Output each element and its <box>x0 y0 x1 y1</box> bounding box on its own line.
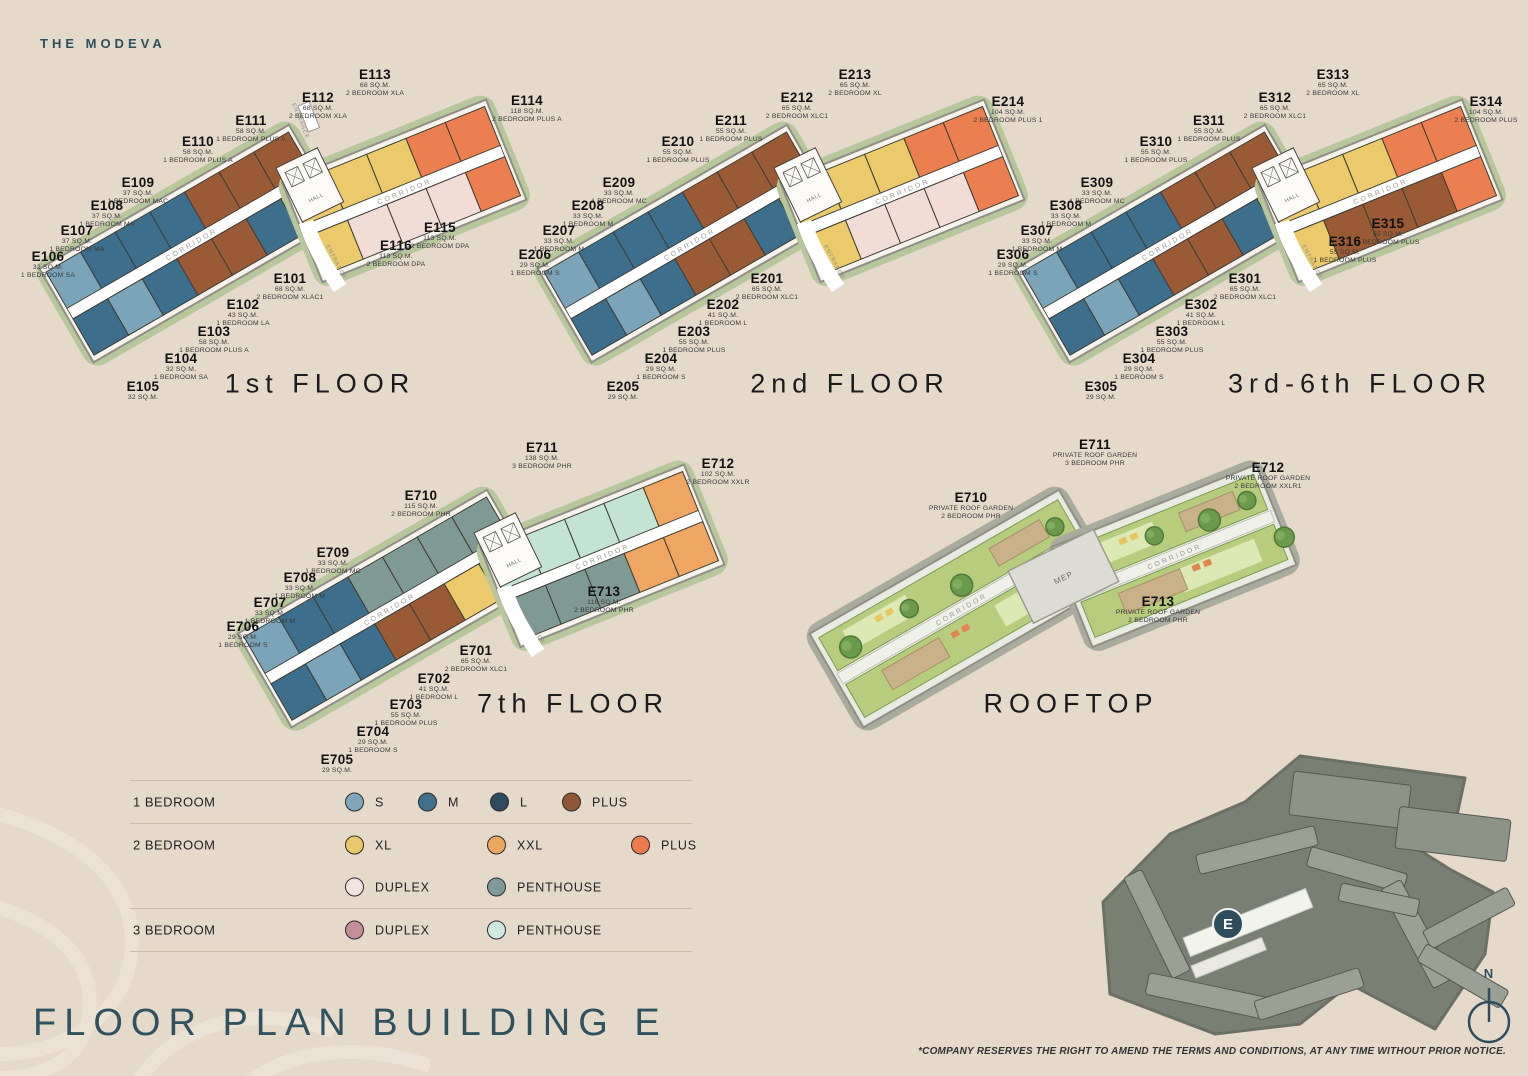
unit-spec: 2 BEDROOM XLA <box>289 113 347 121</box>
unit-label-E713: E713PRIVATE ROOF GARDEN2 BEDROOM PHR <box>1116 594 1200 624</box>
unit-label-E711: E711138 SQ.M.3 BEDROOM PHR <box>512 440 572 470</box>
legend-divider <box>130 951 692 952</box>
unit-spec: 29 SQ.M. <box>607 394 640 402</box>
unit-id: E315 <box>1356 216 1419 231</box>
unit-id: E115 <box>411 220 470 235</box>
legend-color-swatch <box>631 836 650 855</box>
unit-id: E702 <box>410 671 459 686</box>
unit-label-E712: E712102 SQ.M.2 BEDROOM XXLR <box>686 456 749 486</box>
unit-spec: 68 SQ.M. <box>256 286 323 294</box>
unit-id: E710 <box>391 488 451 503</box>
legend-item: PLUS <box>631 836 697 855</box>
unit-id: E116 <box>367 238 426 253</box>
unit-label-E203: E20355 SQ.M.1 BEDROOM PLUS <box>662 324 725 354</box>
unit-spec: 113 SQ.M. <box>367 253 426 261</box>
unit-spec: 2 BEDROOM XLA <box>346 90 404 98</box>
unit-spec: 29 SQ.M. <box>510 262 559 270</box>
unit-label-E713: E713118 SQ.M.2 BEDROOM PHR <box>574 584 634 614</box>
legend-item: L <box>490 793 528 812</box>
unit-id: E112 <box>289 90 347 105</box>
unit-id: E113 <box>346 67 404 82</box>
unit-id: E710 <box>929 490 1013 505</box>
unit-label-E701: E70165 SQ.M.2 BEDROOM XLC1 <box>445 643 507 673</box>
unit-spec: 2 BEDROOM XLC1 <box>1244 113 1306 121</box>
unit-id: E114 <box>492 93 562 108</box>
unit-spec: 37 SQ.M. <box>108 190 168 198</box>
unit-id: E314 <box>1454 94 1517 109</box>
floor-title: 1st FLOOR <box>225 369 416 400</box>
legend-row: 1 BEDROOMSMLPLUS <box>130 780 692 823</box>
unit-spec: 32 SQ.M. <box>127 394 160 402</box>
unit-spec: 1 BEDROOM S <box>348 747 397 755</box>
legend-row: DUPLEXPENTHOUSE <box>130 866 692 908</box>
unit-spec: 55 SQ.M. <box>646 149 709 157</box>
unit-spec: 29 SQ.M. <box>1085 394 1118 402</box>
floor-plan-2nd: CORRIDOR CORRIDOR HALL ENTRANCE 2nd FLOO… <box>528 60 1033 410</box>
unit-label-E212: E21265 SQ.M.2 BEDROOM XLC1 <box>766 90 828 120</box>
unit-spec: 33 SQ.M. <box>591 190 647 198</box>
floor-title: ROOFTOP <box>983 689 1158 720</box>
unit-label-E712: E712PRIVATE ROOF GARDEN2 BEDROOM XXLR1 <box>1226 460 1310 490</box>
unit-spec: 2 BEDROOM XLC1 <box>766 113 828 121</box>
unit-spec: 41 SQ.M. <box>1177 312 1226 320</box>
unit-spec: 115 SQ.M. <box>391 503 451 511</box>
unit-spec: 104 SQ.M. <box>973 109 1042 117</box>
unit-spec: 65 SQ.M. <box>1306 82 1359 90</box>
unit-id: E304 <box>1114 351 1163 366</box>
floor-plan-7th: CORRIDOR CORRIDOR HALL ENTRANCE 7th FLOO… <box>228 425 768 785</box>
unit-spec: 29 SQ.M. <box>636 366 685 374</box>
unit-spec: 2 BEDROOM PHR <box>1116 617 1200 625</box>
unit-spec: 1 BEDROOM M <box>563 221 614 229</box>
unit-id: E704 <box>348 724 397 739</box>
unit-label-E114: E114118 SQ.M.2 BEDROOM PLUS A <box>492 93 562 123</box>
unit-spec: 104 SQ.M. <box>1454 109 1517 117</box>
unit-id: E104 <box>154 351 208 366</box>
unit-spec: 1 BEDROOM M <box>275 593 326 601</box>
unit-id: E713 <box>574 584 634 599</box>
unit-label-E709: E70933 SQ.M.1 BEDROOM MC <box>305 545 361 575</box>
unit-label-E211: E21155 SQ.M.1 BEDROOM PLUS <box>699 113 762 143</box>
legend-item: DUPLEX <box>345 878 430 897</box>
floor-plan-3rd-6th: CORRIDOR CORRIDOR HALL ENTRANCE 3rd-6th … <box>1006 60 1528 410</box>
unit-spec: 55 SQ.M. <box>1124 149 1187 157</box>
unit-spec: 41 SQ.M. <box>699 312 748 320</box>
unit-spec: 29 SQ.M. <box>321 767 354 775</box>
unit-spec: 1 BEDROOM S <box>636 374 685 382</box>
unit-label-E710: E710PRIVATE ROOF GARDEN2 BEDROOM PHR <box>929 490 1013 520</box>
site-map-drawing: E <box>1095 742 1515 1037</box>
unit-spec: 2 BEDROOM DPA <box>367 261 426 269</box>
unit-id: E701 <box>445 643 507 658</box>
floor-title: 2nd FLOOR <box>750 369 950 400</box>
unit-spec: 1 BEDROOM SA <box>154 374 208 382</box>
unit-id: E305 <box>1085 379 1118 394</box>
legend-color-swatch <box>487 878 506 897</box>
unit-label-E302: E30241 SQ.M.1 BEDROOM L <box>1177 297 1226 327</box>
unit-id: E202 <box>699 297 748 312</box>
unit-label-E111: E11158 SQ.M.1 BEDROOM PLUS A <box>216 113 286 143</box>
unit-id: E705 <box>321 752 354 767</box>
unit-id: E303 <box>1140 324 1203 339</box>
unit-spec: 33 SQ.M. <box>1041 213 1092 221</box>
unit-spec: 3 BEDROOM PHR <box>1053 460 1137 468</box>
unit-spec: 65 SQ.M. <box>736 286 798 294</box>
legend-item: PENTHOUSE <box>487 921 602 940</box>
unit-id: E311 <box>1177 113 1240 128</box>
unit-label-E312: E31265 SQ.M.2 BEDROOM XLC1 <box>1244 90 1306 120</box>
unit-label-E305: E30529 SQ.M. <box>1085 379 1118 402</box>
legend-item: M <box>418 793 459 812</box>
floor-plan-1st: CORRIDOR CORRIDOR HALL ENTRANCE ENTRANCE… <box>30 60 535 410</box>
unit-id: E316 <box>1313 234 1376 249</box>
unit-label-E314: E314104 SQ.M.2 BEDROOM PLUS <box>1454 94 1517 124</box>
unit-label-E209: E20933 SQ.M.1 BEDROOM MC <box>591 175 647 205</box>
unit-id: E204 <box>636 351 685 366</box>
unit-spec: 1 BEDROOM M <box>245 618 296 626</box>
unit-spec: 2 BEDROOM PHR <box>929 513 1013 521</box>
unit-spec: 1 BEDROOM PLUS <box>1124 157 1187 165</box>
legend-item-name: DUPLEX <box>375 880 430 894</box>
legend-item: XL <box>345 836 392 855</box>
unit-spec: 2 BEDROOM XXLR1 <box>1226 483 1310 491</box>
unit-spec: 55 SQ.M. <box>1140 339 1203 347</box>
unit-spec: 65 SQ.M. <box>1214 286 1276 294</box>
legend-item: PLUS <box>562 793 628 812</box>
legend-row-label: 1 BEDROOM <box>133 795 216 810</box>
unit-spec: 102 SQ.M. <box>686 471 749 479</box>
building-e-marker-label: E <box>1223 916 1233 933</box>
unit-spec: 1 BEDROOM MAC <box>108 198 168 206</box>
unit-spec: 1 BEDROOM MC <box>305 568 361 576</box>
unit-label-E103: E10358 SQ.M.1 BEDROOM PLUS A <box>179 324 249 354</box>
disclaimer-text: *COMPANY RESERVES THE RIGHT TO AMEND THE… <box>918 1046 1506 1057</box>
unit-spec: 68 SQ.M. <box>289 105 347 113</box>
unit-id: E209 <box>591 175 647 190</box>
unit-spec: 58 SQ.M. <box>163 149 233 157</box>
unit-spec: 55 SQ.M. <box>374 712 437 720</box>
floor-plan-page: THE MODEVA CORRIDOR CORRIDOR HALL ENTRAN… <box>0 0 1528 1076</box>
floor-title: 7th FLOOR <box>477 689 669 720</box>
legend-item-name: XL <box>375 838 392 852</box>
legend-color-swatch <box>418 793 437 812</box>
unit-label-E202: E20241 SQ.M.1 BEDROOM L <box>699 297 748 327</box>
unit-id: E312 <box>1244 90 1306 105</box>
unit-id: E214 <box>973 94 1042 109</box>
unit-id: E109 <box>108 175 168 190</box>
unit-id: E301 <box>1214 271 1276 286</box>
unit-spec: 33 SQ.M. <box>1069 190 1125 198</box>
unit-spec: 37 SQ.M. <box>49 238 104 246</box>
unit-spec: 33 SQ.M. <box>1012 238 1063 246</box>
unit-id: E103 <box>179 324 249 339</box>
unit-label-E205: E20529 SQ.M. <box>607 379 640 402</box>
unit-label-E303: E30355 SQ.M.1 BEDROOM PLUS <box>1140 324 1203 354</box>
unit-spec: 2 BEDROOM XXLR <box>686 479 749 487</box>
legend-item-name: M <box>448 795 459 809</box>
unit-spec: 1 BEDROOM S <box>988 270 1037 278</box>
unit-spec: 2 BEDROOM PHR <box>391 511 451 519</box>
unit-spec: 43 SQ.M. <box>216 312 269 320</box>
unit-id: E713 <box>1116 594 1200 609</box>
unit-id: E101 <box>256 271 323 286</box>
unit-spec: 1 BEDROOM S <box>1114 374 1163 382</box>
unit-spec: 2 BEDROOM PLUS 1 <box>973 117 1042 125</box>
unit-label-E109: E10937 SQ.M.1 BEDROOM MAC <box>108 175 168 205</box>
legend-color-swatch <box>487 836 506 855</box>
unit-id: E313 <box>1306 67 1359 82</box>
unit-spec: 118 SQ.M. <box>492 108 562 116</box>
unit-spec: 32 SQ.M. <box>154 366 208 374</box>
legend-item-name: PENTHOUSE <box>517 880 602 894</box>
unit-spec: PRIVATE ROOF GARDEN <box>1226 475 1310 483</box>
unit-spec: 29 SQ.M. <box>218 634 267 642</box>
unit-spec: 2 BEDROOM PLUS <box>1454 117 1517 125</box>
north-label: N <box>1484 966 1494 981</box>
unit-id: E711 <box>1053 437 1137 452</box>
unit-spec: 1 BEDROOM PLUS <box>646 157 709 165</box>
unit-spec: 2 BEDROOM XL <box>1306 90 1359 98</box>
unit-spec: 1 BEDROOM PLUS <box>699 136 762 144</box>
unit-spec: 118 SQ.M. <box>574 599 634 607</box>
unit-label-E711: E711PRIVATE ROOF GARDEN3 BEDROOM PHR <box>1053 437 1137 467</box>
legend-item-name: PLUS <box>592 795 628 809</box>
legend-item-name: PLUS <box>661 838 697 852</box>
unit-label-E204: E20429 SQ.M.1 BEDROOM S <box>636 351 685 381</box>
unit-spec: 2 BEDROOM PHR <box>574 607 634 615</box>
unit-spec: 29 SQ.M. <box>348 739 397 747</box>
unit-spec: 1 BEDROOM M <box>534 246 585 254</box>
unit-spec: PRIVATE ROOF GARDEN <box>1053 452 1137 460</box>
unit-id: E211 <box>699 113 762 128</box>
unit-label-E309: E30933 SQ.M.1 BEDROOM MC <box>1069 175 1125 205</box>
unit-spec: 32 SQ.M. <box>21 264 75 272</box>
unit-spec: 65 SQ.M. <box>828 82 881 90</box>
unit-type-legend: 1 BEDROOMSMLPLUS2 BEDROOMXLXXLPLUSDUPLEX… <box>130 780 692 952</box>
unit-spec: 33 SQ.M. <box>563 213 614 221</box>
unit-spec: 65 SQ.M. <box>1244 105 1306 113</box>
unit-label-E304: E30429 SQ.M.1 BEDROOM S <box>1114 351 1163 381</box>
legend-item: DUPLEX <box>345 921 430 940</box>
unit-id: E201 <box>736 271 798 286</box>
unit-spec: 58 SQ.M. <box>216 128 286 136</box>
brand-logo: THE MODEVA <box>40 36 166 51</box>
legend-color-swatch <box>345 836 364 855</box>
unit-spec: 138 SQ.M. <box>512 455 572 463</box>
unit-label-E104: E10432 SQ.M.1 BEDROOM SA <box>154 351 208 381</box>
unit-spec: 3 BEDROOM PHR <box>512 463 572 471</box>
legend-item-name: DUPLEX <box>375 923 430 937</box>
unit-spec: 1 BEDROOM MA <box>79 221 134 229</box>
unit-label-E705: E70529 SQ.M. <box>321 752 354 775</box>
unit-spec: 65 SQ.M. <box>445 658 507 666</box>
page-title: FLOOR PLAN BUILDING E <box>33 1002 668 1045</box>
unit-id: E712 <box>686 456 749 471</box>
unit-label-E112: E11268 SQ.M.2 BEDROOM XLA <box>289 90 347 120</box>
unit-id: E105 <box>127 379 160 394</box>
unit-label-E105: E10532 SQ.M. <box>127 379 160 402</box>
unit-spec: 1 BEDROOM M <box>1041 221 1092 229</box>
floor-title: 3rd-6th FLOOR <box>1228 369 1492 400</box>
unit-id: E203 <box>662 324 725 339</box>
unit-id: E205 <box>607 379 640 394</box>
legend-color-swatch <box>562 793 581 812</box>
unit-spec: 1 BEDROOM SA <box>21 272 75 280</box>
unit-spec: 1 BEDROOM MC <box>591 198 647 206</box>
unit-spec: 68 SQ.M. <box>346 82 404 90</box>
unit-id: E703 <box>374 697 437 712</box>
unit-spec: 1 BEDROOM M <box>1012 246 1063 254</box>
legend-item-name: XXL <box>517 838 543 852</box>
unit-spec: 2 BEDROOM PLUS A <box>492 116 562 124</box>
unit-spec: 55 SQ.M. <box>1313 249 1376 257</box>
unit-spec: 33 SQ.M. <box>245 610 296 618</box>
unit-spec: 33 SQ.M. <box>305 560 361 568</box>
legend-color-swatch <box>345 793 364 812</box>
unit-id: E102 <box>216 297 269 312</box>
unit-spec: PRIVATE ROOF GARDEN <box>1116 609 1200 617</box>
legend-row: 3 BEDROOMDUPLEXPENTHOUSE <box>130 908 692 951</box>
legend-row-label: 3 BEDROOM <box>133 923 216 938</box>
unit-id: E709 <box>305 545 361 560</box>
unit-spec: 2 BEDROOM XL <box>828 90 881 98</box>
legend-color-swatch <box>490 793 509 812</box>
unit-spec: 1 BEDROOM PLUS A <box>216 136 286 144</box>
unit-spec: 33 SQ.M. <box>275 585 326 593</box>
unit-spec: 41 SQ.M. <box>410 686 459 694</box>
legend-item: PENTHOUSE <box>487 878 602 897</box>
unit-label-E710: E710115 SQ.M.2 BEDROOM PHR <box>391 488 451 518</box>
unit-id: E213 <box>828 67 881 82</box>
legend-color-swatch <box>487 921 506 940</box>
floor-plan-rooftop: CORRIDOR CORRIDOR MEP ROOFTOPE710PR <box>800 425 1330 755</box>
unit-spec: 1 BEDROOM S <box>218 642 267 650</box>
unit-spec: 65 SQ.M. <box>766 105 828 113</box>
unit-spec: 58 SQ.M. <box>179 339 249 347</box>
legend-item: XXL <box>487 836 543 855</box>
legend-color-swatch <box>345 878 364 897</box>
unit-id: E712 <box>1226 460 1310 475</box>
unit-label-E214: E214104 SQ.M.2 BEDROOM PLUS 1 <box>973 94 1042 124</box>
unit-label-E704: E70429 SQ.M.1 BEDROOM S <box>348 724 397 754</box>
legend-row-label: 2 BEDROOM <box>133 838 216 853</box>
unit-id: E309 <box>1069 175 1125 190</box>
unit-label-E311: E31155 SQ.M.1 BEDROOM PLUS <box>1177 113 1240 143</box>
unit-spec: 55 SQ.M. <box>699 128 762 136</box>
unit-label-E703: E70355 SQ.M.1 BEDROOM PLUS <box>374 697 437 727</box>
legend-item-name: L <box>520 795 528 809</box>
unit-spec: 1 BEDROOM PLUS <box>1177 136 1240 144</box>
legend-row: 2 BEDROOMXLXXLPLUS <box>130 823 692 866</box>
unit-spec: 55 SQ.M. <box>662 339 725 347</box>
unit-spec: 29 SQ.M. <box>988 262 1037 270</box>
unit-label-E113: E11368 SQ.M.2 BEDROOM XLA <box>346 67 404 97</box>
unit-spec: PRIVATE ROOF GARDEN <box>929 505 1013 513</box>
unit-label-E116: E116113 SQ.M.2 BEDROOM DPA <box>367 238 426 268</box>
unit-id: E302 <box>1177 297 1226 312</box>
unit-label-E213: E21365 SQ.M.2 BEDROOM XL <box>828 67 881 97</box>
unit-spec: 37 SQ.M. <box>79 213 134 221</box>
site-map: E <box>1095 742 1515 1042</box>
unit-label-E316: E31655 SQ.M.1 BEDROOM PLUS <box>1313 234 1376 264</box>
unit-label-E102: E10243 SQ.M.1 BEDROOM LA <box>216 297 269 327</box>
unit-spec: 1 BEDROOM S <box>510 270 559 278</box>
unit-spec: 1 BEDROOM PLUS A <box>163 157 233 165</box>
unit-spec: 1 BEDROOM MC <box>1069 198 1125 206</box>
unit-label-E106: E10632 SQ.M.1 BEDROOM SA <box>21 249 75 279</box>
legend-item: S <box>345 793 384 812</box>
unit-spec: 1 BEDROOM PLUS <box>1313 257 1376 265</box>
unit-spec: 55 SQ.M. <box>1177 128 1240 136</box>
legend-item-name: S <box>375 795 384 809</box>
unit-id: E711 <box>512 440 572 455</box>
unit-spec: 1 BEDROOM MA <box>49 246 104 254</box>
legend-item-name: PENTHOUSE <box>517 923 602 937</box>
legend-color-swatch <box>345 921 364 940</box>
unit-id: E111 <box>216 113 286 128</box>
unit-spec: 29 SQ.M. <box>1114 366 1163 374</box>
unit-spec: 33 SQ.M. <box>534 238 585 246</box>
unit-label-E313: E31365 SQ.M.2 BEDROOM XL <box>1306 67 1359 97</box>
unit-id: E212 <box>766 90 828 105</box>
